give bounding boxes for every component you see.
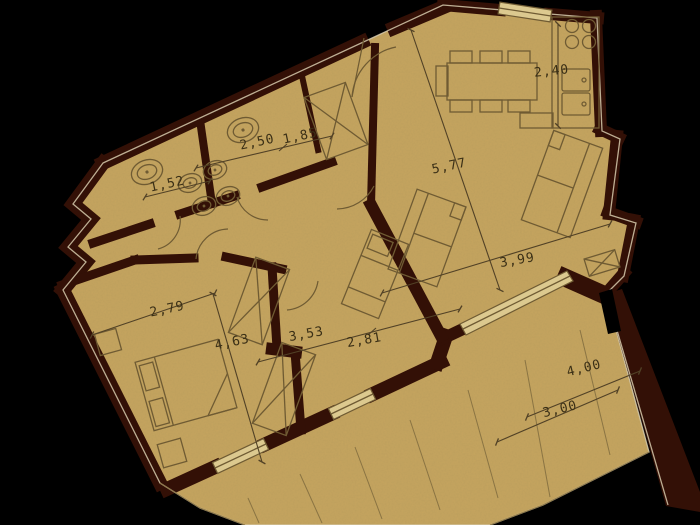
- floor-plan-canvas: 2,40 2,50 1,85 1,52 2,79 4,63 3,53 2,81 …: [0, 0, 700, 525]
- floor-plan: 2,40 2,50 1,85 1,52 2,79 4,63 3,53 2,81 …: [0, 0, 700, 525]
